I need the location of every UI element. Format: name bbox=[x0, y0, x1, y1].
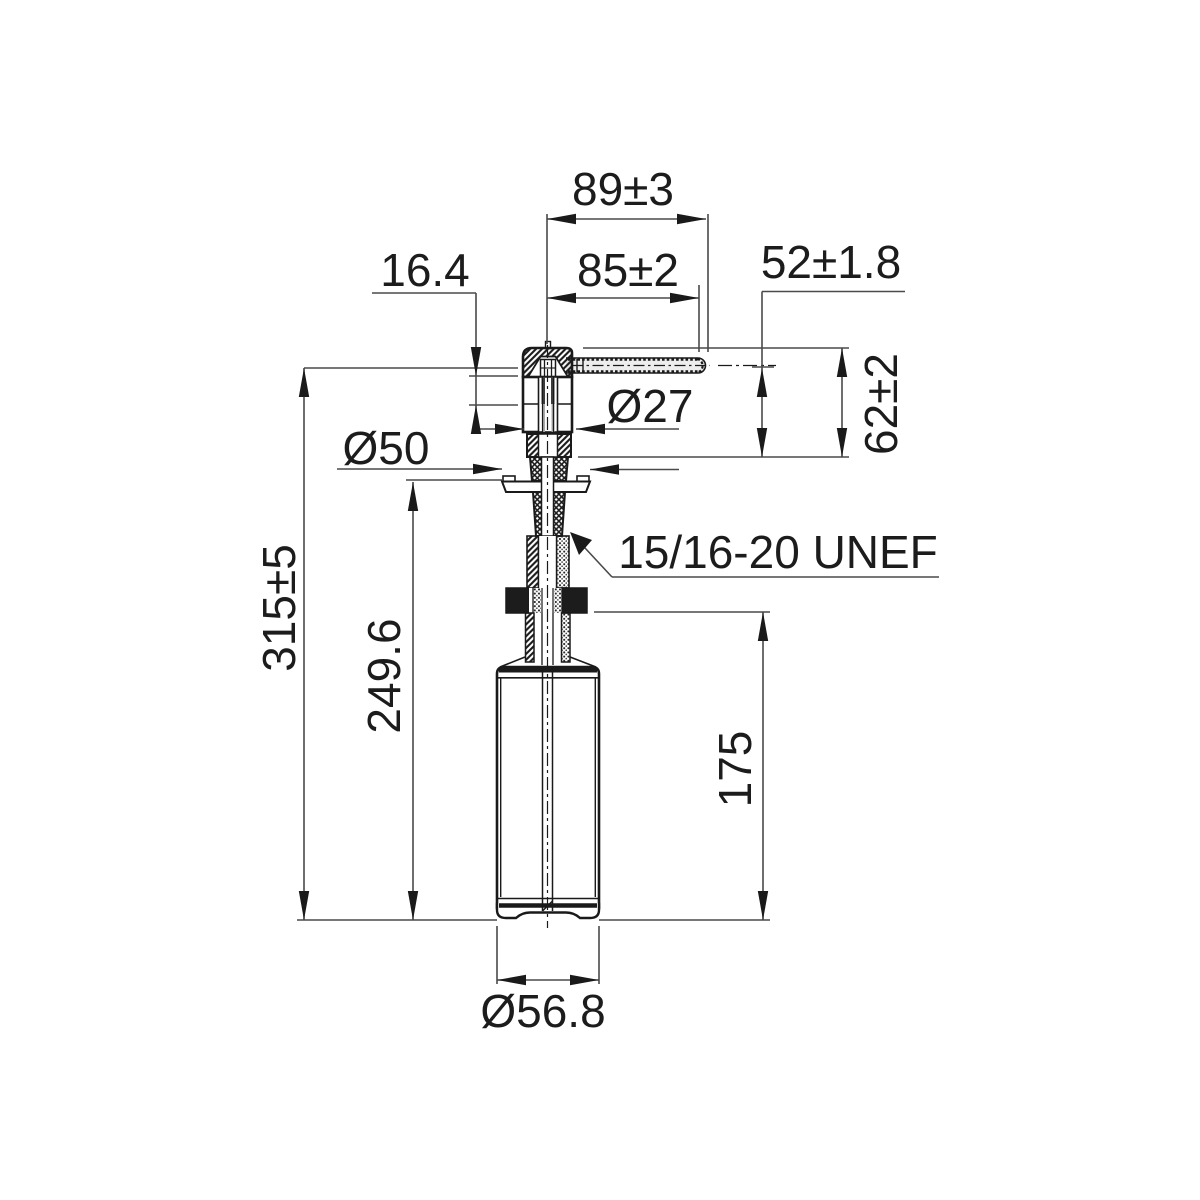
svg-text:315±5: 315±5 bbox=[253, 544, 305, 672]
svg-text:Ø56.8: Ø56.8 bbox=[480, 985, 605, 1037]
svg-text:62±2: 62±2 bbox=[855, 353, 907, 455]
svg-text:15/16-20 UNEF: 15/16-20 UNEF bbox=[618, 526, 938, 578]
svg-text:52±1.8: 52±1.8 bbox=[761, 236, 901, 288]
svg-text:175: 175 bbox=[709, 731, 761, 808]
svg-text:85±2: 85±2 bbox=[577, 244, 679, 296]
svg-text:16.4: 16.4 bbox=[380, 244, 470, 296]
svg-text:Ø50: Ø50 bbox=[343, 422, 430, 474]
svg-text:Ø27: Ø27 bbox=[607, 380, 694, 432]
svg-text:249.6: 249.6 bbox=[358, 618, 410, 733]
svg-text:89±3: 89±3 bbox=[572, 163, 674, 215]
